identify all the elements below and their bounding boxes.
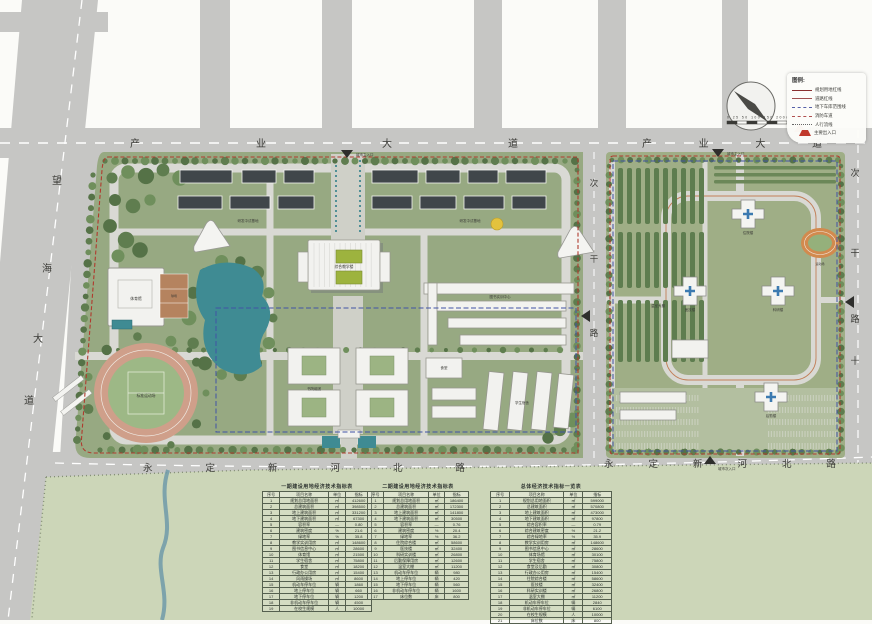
tree <box>552 158 558 164</box>
hedge-row <box>714 173 836 177</box>
tree <box>575 168 580 173</box>
quad-courtyard <box>302 356 326 375</box>
tree <box>141 157 150 166</box>
tree <box>90 172 95 177</box>
legend-label: 消防车道 <box>815 113 833 119</box>
tree <box>151 157 159 165</box>
tree-cluster <box>126 199 141 214</box>
tree <box>826 157 833 164</box>
table-row: 21床位数床800 <box>491 618 612 624</box>
quad-courtyard <box>370 356 394 375</box>
tree <box>837 199 844 206</box>
tree <box>343 347 349 353</box>
scale-segment <box>757 121 767 124</box>
tree <box>606 381 613 388</box>
tree <box>429 348 434 353</box>
tree <box>174 447 180 453</box>
quad-courtyard <box>302 398 326 417</box>
slab-building <box>230 196 270 209</box>
lab-slab <box>460 335 566 345</box>
tree <box>663 157 669 163</box>
building-label: 研发中试基地 <box>238 218 259 223</box>
tree <box>838 254 844 260</box>
tree <box>837 444 844 451</box>
stadium-tree <box>133 332 142 341</box>
slab-building <box>372 170 418 183</box>
legend-label: 道路红线 <box>815 96 833 102</box>
tree <box>838 318 844 324</box>
greenhouse-row <box>654 232 659 288</box>
tree <box>83 282 90 289</box>
tree <box>88 194 95 201</box>
east-support-building <box>672 340 708 358</box>
tree <box>86 226 94 234</box>
tree-cluster <box>109 194 121 206</box>
tree <box>544 348 548 352</box>
stadium-tree <box>83 404 93 414</box>
tree <box>574 332 579 337</box>
tree <box>745 158 750 163</box>
tree <box>573 430 580 437</box>
tree <box>371 157 380 166</box>
greenhouse-row <box>618 300 623 362</box>
teaching-wing <box>298 252 308 282</box>
tree <box>837 308 844 315</box>
tree <box>838 208 845 215</box>
road-label-cigan-mid: 路 <box>590 328 599 338</box>
scale-segment <box>767 121 777 124</box>
tree <box>605 199 612 206</box>
tree-cluster <box>112 250 125 263</box>
tree <box>606 254 612 260</box>
tree <box>637 157 642 162</box>
tree-cluster <box>144 194 155 205</box>
tree <box>575 377 580 382</box>
slab-building <box>178 196 222 209</box>
marker-label: 城市主入口 <box>356 152 374 157</box>
tree <box>442 158 448 164</box>
stadium-tree <box>102 345 112 355</box>
road-label-wanghai: 望 <box>52 174 62 187</box>
tree <box>573 386 580 393</box>
tree <box>75 415 81 421</box>
tree <box>83 259 91 267</box>
greenhouse-row <box>645 168 650 224</box>
tree <box>838 181 844 187</box>
tree <box>557 347 563 353</box>
greenhouse-row <box>618 168 623 224</box>
building-label: 体育馆 <box>130 296 142 301</box>
tree <box>132 158 138 164</box>
road-label-wanghai: 道 <box>24 394 34 407</box>
compass-center <box>750 105 753 108</box>
tree <box>654 157 661 164</box>
stadium-tree <box>203 390 210 397</box>
legend-swatch-tri-red <box>799 130 811 136</box>
tree <box>837 272 844 279</box>
tree <box>606 427 612 433</box>
scale-segment <box>777 121 787 124</box>
scale-segment <box>747 121 757 124</box>
tree <box>271 157 278 164</box>
tree <box>541 157 548 164</box>
tree <box>799 157 805 163</box>
indicator-table: 序号项目名称单位指标1规划总用地面积㎡5990002总建筑面积㎡5708003地… <box>490 491 612 624</box>
tree-cluster <box>138 168 154 184</box>
tree <box>432 158 439 165</box>
greenhouse-row <box>654 168 659 224</box>
tree <box>838 363 843 368</box>
tree <box>717 156 724 163</box>
tree <box>80 326 87 333</box>
tree <box>352 158 359 165</box>
tree <box>606 208 613 215</box>
tree <box>606 417 613 424</box>
tree <box>292 158 297 163</box>
stadium-tree <box>167 441 174 448</box>
legend-item: 地下车库范围线 <box>792 103 862 112</box>
legend-swatch-dot-gray <box>792 124 812 125</box>
road-context-v1 <box>200 0 230 128</box>
tree <box>514 347 520 353</box>
tree <box>838 354 844 360</box>
building-label: 住院楼 <box>743 230 754 235</box>
tree <box>472 347 477 352</box>
slab-building <box>242 170 276 183</box>
road-label-wanghai: 海 <box>42 262 52 275</box>
tree <box>561 447 567 453</box>
tree <box>574 442 580 448</box>
greenhouse-row <box>645 232 650 288</box>
road-label-cigan-east: 路 <box>850 313 859 324</box>
legend-rows: 规划用地红线道路红线地下车库范围线消防车道人行流线主要出入口 <box>792 86 862 138</box>
legend-swatch-solid-red <box>792 90 812 91</box>
building-label: 书院组团 <box>307 386 321 391</box>
tree <box>673 157 678 162</box>
tree <box>763 157 769 163</box>
tree <box>606 436 611 441</box>
slab-building <box>506 170 546 183</box>
building-label: 科研楼 <box>773 307 784 312</box>
tree <box>627 157 633 163</box>
tree <box>517 447 523 453</box>
tree <box>838 281 844 287</box>
entry-pool <box>358 436 376 448</box>
tree <box>421 157 429 165</box>
building-label: 运动场 <box>815 261 824 266</box>
tree <box>392 158 399 165</box>
tree <box>781 158 786 163</box>
tree <box>574 266 581 273</box>
tree <box>491 157 499 165</box>
dorm-slab <box>432 406 476 418</box>
road-context-v4 <box>598 0 626 128</box>
table-cell: 21 <box>491 618 510 624</box>
tree <box>789 157 796 164</box>
building-label: 后勤楼 <box>766 413 777 418</box>
road-label-cigan-mid: 次 <box>590 178 599 188</box>
east-logistics-slab <box>620 410 676 420</box>
table-cell: 床位数 <box>384 594 429 600</box>
table-cell: 10000 <box>346 606 372 612</box>
tree <box>574 310 581 317</box>
tree <box>296 447 302 453</box>
tree <box>700 157 706 163</box>
building-label: 研发中试基地 <box>460 218 481 223</box>
gatehouse <box>338 430 360 438</box>
tree <box>81 303 89 311</box>
tree <box>607 300 612 305</box>
slab-building <box>372 196 412 209</box>
table-row: 19在校生规模人10000 <box>263 606 372 612</box>
tree <box>839 373 844 378</box>
tree-cluster <box>157 164 170 177</box>
tree <box>838 417 845 424</box>
tree-cluster <box>132 242 148 258</box>
tree <box>261 157 269 165</box>
tree <box>428 447 434 453</box>
dorm-slab <box>432 388 476 400</box>
teaching-wing <box>380 252 390 282</box>
tree <box>307 447 312 452</box>
tree <box>605 408 612 415</box>
marker-label: 城市次入口 <box>718 466 736 471</box>
tree <box>81 315 88 322</box>
tree <box>606 291 612 297</box>
tree <box>311 157 318 164</box>
tree <box>73 436 81 444</box>
tree <box>341 157 349 165</box>
tree <box>472 158 479 165</box>
tree <box>838 436 843 441</box>
tree <box>531 157 539 165</box>
greenhouse-row <box>627 168 632 224</box>
tree <box>605 308 612 315</box>
tree <box>606 245 612 251</box>
legend-title: 图例: <box>792 76 862 84</box>
tree <box>606 390 612 396</box>
road-label-cigan-mid: 干 <box>590 254 599 264</box>
tree <box>322 158 328 164</box>
table-cell: 800 <box>445 594 469 600</box>
tree <box>273 348 277 352</box>
tree <box>772 157 777 162</box>
tree <box>808 157 813 162</box>
tree <box>726 157 732 163</box>
tree <box>172 158 178 164</box>
tree <box>574 189 580 195</box>
tree <box>501 157 508 164</box>
tree <box>461 447 468 454</box>
tree <box>88 205 94 211</box>
tree <box>242 158 249 165</box>
pond-tree <box>263 337 275 349</box>
hedge-row <box>714 180 836 184</box>
tree <box>574 277 580 283</box>
tree <box>607 164 612 169</box>
tree <box>505 447 512 454</box>
road-label-cigan-east: 干 <box>850 248 859 258</box>
tree <box>606 218 612 224</box>
building-label: 食堂 <box>441 365 449 370</box>
tree <box>263 447 269 453</box>
table-cell: 床 <box>564 618 583 624</box>
tree <box>606 281 612 287</box>
tree <box>818 158 823 163</box>
tree <box>605 272 612 279</box>
tree <box>838 400 843 405</box>
scale-segment <box>727 121 737 124</box>
tree <box>837 408 844 415</box>
building-label: 图书实训中心 <box>490 294 511 299</box>
tree <box>709 158 714 163</box>
legend-card: 图例: 规划用地红线道路红线地下车库范围线消防车道人行流线主要出入口 <box>787 73 866 143</box>
tree <box>606 327 611 332</box>
scale-bar-labels: 0 25 50 100 150 200m <box>727 116 789 120</box>
greenhouse-row <box>672 232 677 288</box>
legend-label: 主要出入口 <box>814 130 836 136</box>
lab-connector <box>428 283 437 345</box>
road-context-v2 <box>322 0 352 128</box>
tree <box>606 363 611 368</box>
lab-slab <box>424 283 574 294</box>
tree <box>574 288 579 293</box>
legend-label: 规划用地红线 <box>815 87 841 93</box>
greenhouse-row <box>618 232 623 288</box>
tree <box>574 200 580 206</box>
tree <box>838 172 845 179</box>
tree <box>444 348 448 352</box>
tree <box>607 336 612 341</box>
slab-building <box>512 196 546 209</box>
indicator-table: 序号项目名称单位指标1规划总用地面积㎡4126002总建筑面积㎡3985003地… <box>262 491 372 612</box>
legend-swatch-solid-dark <box>792 98 812 99</box>
tree <box>839 300 844 305</box>
road-label-wanghai: 大 <box>33 332 43 345</box>
tree <box>384 447 390 453</box>
slab-building <box>468 170 498 183</box>
greenhouse-row <box>636 300 641 362</box>
tree <box>473 447 479 453</box>
tree <box>457 347 463 353</box>
stadium-tree <box>103 432 111 440</box>
table-cell: 床位数 <box>510 618 564 624</box>
tree <box>838 327 843 332</box>
round-pavilion <box>491 218 503 230</box>
greenhouse-row <box>663 168 668 224</box>
tree <box>574 354 581 361</box>
roof-courtyard <box>336 271 362 284</box>
tree <box>332 158 337 163</box>
tree <box>482 158 488 164</box>
stadium-tree <box>84 373 92 381</box>
tree <box>606 172 613 179</box>
east-logistics-slab <box>620 392 686 403</box>
table-row: 17床位数床800 <box>368 594 469 600</box>
tree <box>681 156 688 163</box>
tree <box>606 181 612 187</box>
tree <box>251 447 258 454</box>
tree <box>512 158 518 164</box>
tree <box>838 344 845 351</box>
swimming-pool <box>112 320 132 329</box>
tree-cluster <box>118 232 134 248</box>
tree <box>80 338 86 344</box>
legend-item: 道路红线 <box>792 95 862 104</box>
indicator-table-phase2: 二期建设用地经济技术指标表序号项目名称单位指标1规划总用地面积㎡1864002总… <box>367 483 469 600</box>
legend-swatch-dash-red <box>792 116 812 117</box>
roof-courtyard <box>336 250 362 263</box>
tree <box>838 427 844 433</box>
tree <box>838 191 843 196</box>
tree <box>221 157 229 165</box>
tree <box>606 344 613 351</box>
tree <box>402 158 408 164</box>
table-title: 一期建设用地经济技术指标表 <box>262 483 372 490</box>
tree <box>644 156 651 163</box>
tree <box>839 164 844 169</box>
tree <box>607 373 612 378</box>
legend-label: 人行流线 <box>815 122 833 128</box>
greenhouse-row <box>627 232 632 288</box>
tree <box>573 342 580 349</box>
tree <box>111 157 119 165</box>
tree <box>753 156 760 163</box>
tree-cluster <box>103 219 117 233</box>
tree <box>550 447 556 453</box>
tree <box>75 426 80 431</box>
tree <box>606 400 611 405</box>
legend-item: 主要出入口 <box>792 129 862 138</box>
table-cell: 800 <box>583 618 612 624</box>
tree-cluster <box>121 165 135 179</box>
indicator-table-phase1: 一期建设用地经济技术指标表序号项目名称单位指标1规划总用地面积㎡4126002总… <box>262 483 372 612</box>
greenhouse-row <box>699 168 704 224</box>
tree <box>839 336 844 341</box>
table-cell: 床 <box>429 594 445 600</box>
slab-building <box>426 170 460 183</box>
stadium-tree <box>192 358 201 367</box>
small-track-field <box>808 235 832 252</box>
tree <box>207 447 214 454</box>
tree <box>97 447 102 452</box>
table-cell: 人 <box>328 606 345 612</box>
road-label-cigan-east: 次 <box>850 167 859 178</box>
building-label: 温室大棚 <box>651 303 665 308</box>
legend-swatch-dash-blue <box>792 107 812 108</box>
greenhouse-row <box>690 168 695 224</box>
table-cell: 19 <box>263 606 280 612</box>
tree <box>202 158 209 165</box>
tree <box>690 157 696 163</box>
tree <box>573 298 581 306</box>
hedge-row <box>714 166 836 170</box>
greenhouse-row <box>636 232 641 288</box>
tree <box>451 157 459 165</box>
road-context-v3 <box>474 0 502 128</box>
tree <box>78 348 86 356</box>
building-label: 学生宿舍 <box>515 400 529 405</box>
tree <box>162 158 169 165</box>
table-title: 二期建设用地经济技术指标表 <box>367 483 469 490</box>
tree <box>574 365 580 371</box>
tree <box>362 158 368 164</box>
scale-segment <box>737 121 747 124</box>
lab-slab <box>448 318 566 328</box>
table-cell: 17 <box>368 594 384 600</box>
tree <box>282 158 288 164</box>
tree <box>606 191 611 196</box>
